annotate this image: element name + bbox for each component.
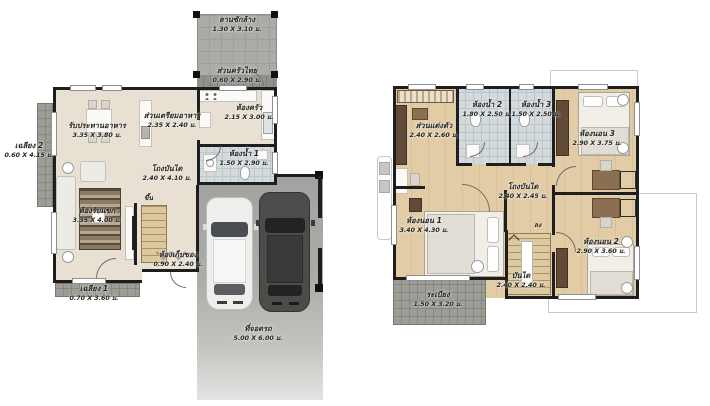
window	[634, 102, 640, 136]
room-dims: 3.35 X 4.00 ม.	[72, 216, 121, 226]
ac-unit	[379, 162, 390, 175]
wall	[393, 186, 425, 189]
room-name: ห้องน้ำ 2	[462, 99, 511, 110]
armchair	[80, 161, 106, 182]
desk	[592, 198, 620, 218]
room-dims: 2.90 X 3.75 ม.	[572, 139, 621, 149]
room-label-dressing: ส่วนแต่งตัว 2.40 X 2.60 ม.	[409, 120, 458, 141]
desk	[592, 170, 620, 190]
dresser-cabinet	[395, 105, 407, 165]
stairs-down-label: ลง	[534, 220, 541, 230]
room-name: ส่วนเตรียมอาหาร	[144, 110, 201, 121]
room-name: ระเบียง	[413, 289, 462, 300]
window	[466, 84, 484, 90]
room-dims: 2.40 X 2.60 ม.	[409, 131, 458, 141]
car-rear-window	[268, 285, 302, 296]
room-label-parking: ที่จอดรถ 5.00 X 6.00 ม.	[233, 323, 282, 344]
wall	[553, 192, 639, 195]
window	[391, 205, 397, 245]
room-name: เฉลียง 1	[69, 283, 118, 294]
room-dims: 0.60 X 4.15 ม.	[4, 151, 53, 161]
car-mirror	[203, 224, 207, 230]
room-dims: 2.40 X 2.40 ม.	[496, 281, 545, 291]
dining-chair	[88, 100, 97, 109]
room-name: ลานซักล้าง	[212, 14, 261, 25]
wall	[552, 252, 555, 299]
car-white	[206, 197, 253, 310]
room-dims: 1.80 X 2.50 ม.	[462, 110, 511, 120]
room-label-bedroom2: ห้องนอน 2 2.90 X 3.60 ม.	[576, 236, 625, 257]
fridge	[199, 112, 211, 128]
room-name: บันได	[496, 270, 545, 281]
ceiling-lamp	[621, 282, 633, 294]
room-label-living: ห้องรับแขก 3.35 X 4.00 ม.	[72, 205, 121, 226]
window	[272, 152, 278, 174]
room-label-dining: รับประทานอาหาร 3.35 X 3.80 ม.	[68, 120, 126, 141]
carport-post	[315, 284, 323, 292]
vanity-desk	[395, 168, 408, 194]
room-label-stairs-2f: บันได 2.40 X 2.40 ม.	[496, 270, 545, 291]
stairs-up-label: ขึ้น	[144, 193, 153, 203]
room-label-thai-kitchen: ส่วนครัวไทย 0.60 X 2.90 ม.	[212, 65, 261, 86]
room-name: ห้องนอน 2	[576, 236, 625, 247]
wall	[393, 86, 396, 280]
room-label-washing-yard: ลานซักล้าง 1.30 X 3.10 ม.	[212, 14, 261, 35]
room-dims: 2.40 X 2.45 ม.	[498, 192, 547, 202]
bench	[412, 108, 428, 120]
wardrobe-dark	[556, 248, 568, 288]
ceiling-lamp	[471, 260, 484, 273]
car-mirror	[311, 220, 315, 226]
room-label-bathroom1: ห้องน้ำ 1 1.50 X 2.90 ม.	[219, 148, 268, 169]
vanity-chair	[410, 173, 420, 186]
room-dims: 1.50 X 2.90 ม.	[219, 159, 268, 169]
room-label-balcony: ระเบียง 1.50 X 3.20 ม.	[413, 289, 462, 310]
wall-post	[271, 11, 278, 18]
side-table	[62, 251, 74, 263]
room-dims: 5.00 X 6.00 ม.	[233, 334, 282, 344]
room-name: โถงบันได	[142, 163, 191, 174]
side-table	[62, 162, 74, 174]
room-dims: 2.40 X 4.10 ม.	[142, 174, 191, 184]
stove-burners	[203, 92, 219, 100]
room-name: ห้องนอน 3	[572, 128, 621, 139]
room-name: ส่วนครัวไทย	[212, 65, 261, 76]
dining-chair	[101, 100, 110, 109]
window	[408, 84, 436, 90]
carport-wall	[318, 176, 322, 218]
room-label-bedroom3: ห้องนอน 3 2.90 X 3.75 ม.	[572, 128, 621, 149]
room-name: รับประทานอาหาร	[68, 120, 126, 131]
car-grille	[272, 302, 282, 305]
car-dark	[259, 192, 310, 312]
wall-post	[193, 11, 200, 18]
window	[519, 84, 534, 90]
car-grille	[233, 301, 243, 304]
car-windshield	[265, 218, 305, 233]
wardrobe	[397, 90, 454, 103]
car-roof	[213, 239, 246, 283]
shelf-unit	[620, 199, 636, 217]
room-name: ห้องครัว	[224, 102, 273, 113]
carport-wall	[318, 248, 322, 288]
wall	[486, 163, 526, 166]
nightstand	[409, 198, 422, 212]
room-name: ห้องน้ำ 3	[511, 99, 560, 110]
ac-unit	[379, 180, 390, 193]
car-roof	[267, 235, 303, 283]
room-label-prep-area: ส่วนเตรียมอาหาร 2.35 X 2.40 ม.	[144, 110, 201, 131]
room-label-bathroom3: ห้องน้ำ 3 1.50 X 2.50 ม.	[511, 99, 560, 120]
car-windshield	[211, 222, 248, 237]
wall	[458, 163, 472, 166]
room-name: เฉลียง 2	[4, 140, 53, 151]
window	[51, 212, 57, 254]
desk-chair	[600, 217, 612, 228]
car-grille	[217, 301, 227, 304]
car-mirror	[256, 220, 260, 226]
room-dims: 0.60 X 2.90 ม.	[212, 76, 261, 86]
room-name: โถงบันได	[498, 181, 547, 192]
room-name: ห้องนอน 1	[399, 215, 448, 226]
car-grille	[289, 302, 299, 305]
room-label-stair-hall-1f: โถงบันได 2.40 X 4.10 ม.	[142, 163, 191, 184]
room-label-stair-hall-2f: โถงบันได 2.40 X 2.45 ม.	[498, 181, 547, 202]
window	[578, 84, 608, 90]
car-rear-window	[214, 284, 245, 295]
room-label-porch2: เฉลียง 2 0.60 X 4.15 ม.	[4, 140, 53, 161]
bed-pillow	[487, 246, 499, 272]
room-dims: 3.40 X 4.30 ม.	[399, 226, 448, 236]
wall	[134, 203, 137, 265]
room-label-kitchen: ห้องครัว 2.15 X 3.00 ม.	[224, 102, 273, 123]
window	[558, 294, 596, 300]
room-label-porch1: เฉลียง 1 0.70 X 3.60 ม.	[69, 283, 118, 304]
room-dims: 0.90 X 2.40 ม.	[153, 260, 202, 270]
window	[634, 246, 640, 280]
room-name: ห้องรับแขก	[72, 205, 121, 216]
room-dims: 3.35 X 3.80 ม.	[68, 131, 126, 141]
desk-chair	[600, 160, 612, 171]
room-dims: 1.30 X 3.10 ม.	[212, 25, 261, 35]
room-dims: 0.70 X 3.60 ม.	[69, 294, 118, 304]
room-label-storage: ห้องเก็บของ 0.90 X 2.40 ม.	[153, 249, 202, 270]
room-name: ห้องน้ำ 1	[219, 148, 268, 159]
room-dims: 2.15 X 3.00 ม.	[224, 113, 273, 123]
wall-post	[271, 71, 278, 78]
room-dims: 1.50 X 3.20 ม.	[413, 300, 462, 310]
ceiling-lamp	[617, 94, 629, 106]
room-dims: 2.35 X 2.40 ม.	[144, 121, 201, 131]
room-name: ส่วนแต่งตัว	[409, 120, 458, 131]
room-name: ห้องเก็บของ	[153, 249, 202, 260]
room-label-bathroom2: ห้องน้ำ 2 1.80 X 2.50 ม.	[462, 99, 511, 120]
bed-pillow	[583, 96, 603, 107]
room-dims: 1.50 X 2.50 ม.	[511, 110, 560, 120]
wall	[197, 182, 277, 185]
window	[102, 85, 122, 91]
bed-pillow	[487, 217, 499, 243]
balcony-sliding-door	[406, 275, 470, 281]
room-label-bedroom1: ห้องนอน 1 3.40 X 4.30 ม.	[399, 215, 448, 236]
room-dims: 2.90 X 3.60 ม.	[576, 247, 625, 257]
shelf-unit	[620, 171, 636, 189]
room-name: ที่จอดรถ	[233, 323, 282, 334]
floorplan-canvas: ลานซักล้าง 1.30 X 3.10 ม. ส่วนครัวไทย 0.…	[0, 0, 710, 406]
wall-post	[193, 71, 200, 78]
window	[70, 85, 96, 91]
